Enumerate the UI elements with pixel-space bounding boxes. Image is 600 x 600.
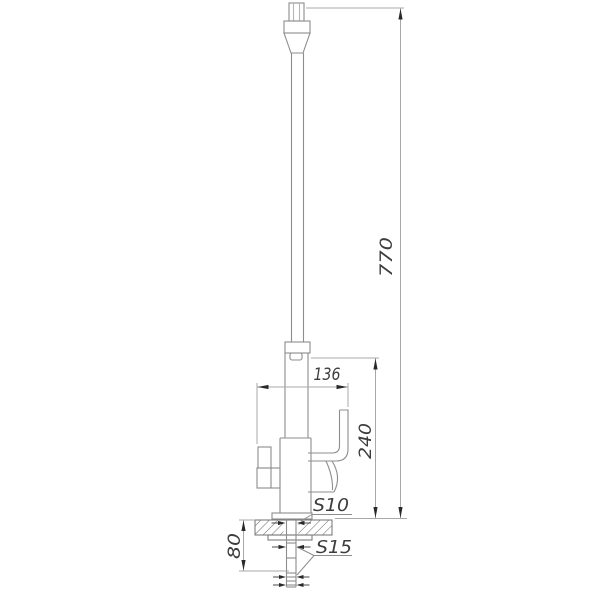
spout-base-collar (285, 342, 310, 360)
drawing-canvas: 770 240 136 80 S10 S15 (0, 0, 600, 600)
dim-label-under-counter: 80 (225, 533, 245, 559)
faucet-technical-drawing: 770 240 136 80 S10 S15 (0, 0, 600, 600)
label-hex-stem: S15 (316, 537, 352, 558)
washer (268, 535, 312, 540)
mixer-lever (308, 410, 348, 492)
label-hex-body: S10 (313, 495, 349, 516)
dim-label-body-height: 240 (356, 423, 376, 459)
dimension-overall-width (257, 383, 348, 444)
mounting-deck (255, 520, 332, 535)
filter-handle (257, 447, 280, 488)
dim-label-overall-width: 136 (314, 365, 341, 385)
spout-tube (292, 53, 304, 342)
dim-label-total-height: 770 (377, 237, 397, 277)
faucet-body (272, 353, 312, 519)
spout-nut (284, 21, 310, 53)
spout-aerator-tip (289, 3, 304, 21)
